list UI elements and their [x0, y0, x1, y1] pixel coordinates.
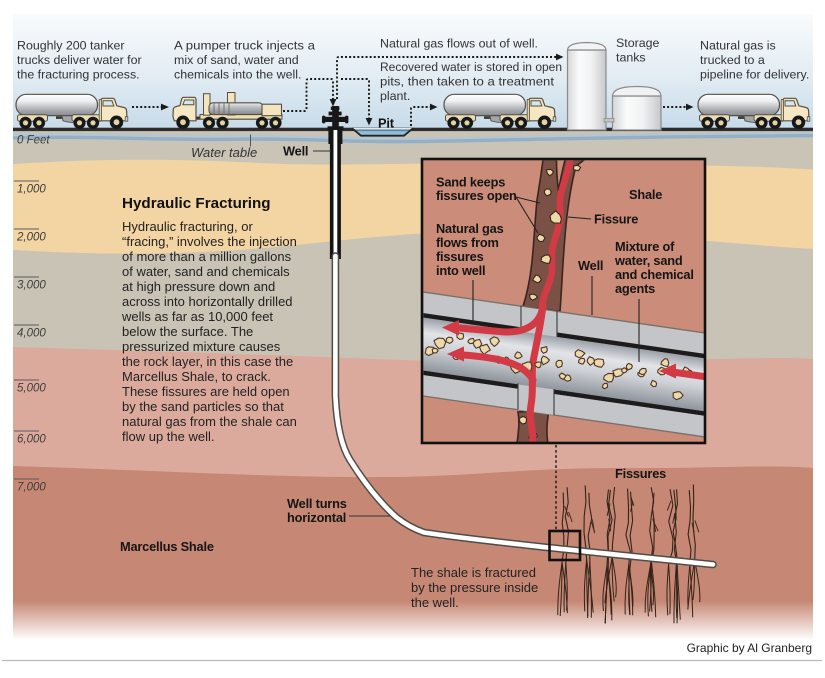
- svg-text:of water, sand and chemicals: of water, sand and chemicals: [122, 264, 290, 279]
- svg-text:Graphic by Al Granberg: Graphic by Al Granberg: [687, 641, 812, 655]
- svg-text:Hydraulic Fracturing: Hydraulic Fracturing: [122, 195, 271, 212]
- svg-text:below the surface. The: below the surface. The: [122, 324, 253, 339]
- svg-text:chemicals into the well.: chemicals into the well.: [174, 67, 301, 81]
- svg-text:fissures open: fissures open: [436, 188, 517, 203]
- svg-text:Marcellus Shale, to crack.: Marcellus Shale, to crack.: [122, 369, 271, 384]
- svg-text:at high pressure down and: at high pressure down and: [122, 279, 275, 294]
- svg-text:trucked to a: trucked to a: [700, 53, 765, 67]
- svg-text:These fissures are held open: These fissures are held open: [122, 384, 290, 399]
- svg-text:plant.: plant.: [380, 89, 410, 103]
- svg-text:Pit: Pit: [378, 116, 395, 131]
- svg-text:agents: agents: [615, 281, 655, 296]
- svg-text:Natural gas: Natural gas: [436, 221, 504, 236]
- svg-text:the well.: the well.: [411, 595, 459, 610]
- svg-text:Well: Well: [283, 144, 308, 159]
- svg-text:flow up the well.: flow up the well.: [122, 429, 215, 444]
- svg-text:Water table: Water table: [191, 145, 257, 160]
- svg-text:Fissures: Fissures: [615, 466, 666, 481]
- svg-text:the fracturing process.: the fracturing process.: [17, 67, 140, 81]
- svg-text:tanks: tanks: [616, 50, 646, 64]
- svg-text:flows from: flows from: [436, 235, 499, 250]
- svg-text:Fissure: Fissure: [594, 212, 638, 227]
- svg-text:pipeline for delivery.: pipeline for delivery.: [700, 67, 809, 81]
- svg-text:3,000: 3,000: [17, 280, 46, 292]
- svg-text:6,000: 6,000: [17, 434, 46, 446]
- svg-text:trucks deliver water for: trucks deliver water for: [17, 53, 142, 67]
- svg-text:0 Feet: 0 Feet: [17, 135, 50, 147]
- svg-text:by the sand particles so that: by the sand particles so that: [122, 399, 284, 414]
- svg-text:Natural gas flows out of well.: Natural gas flows out of well.: [380, 37, 538, 51]
- svg-text:by the pressure inside: by the pressure inside: [411, 580, 538, 595]
- svg-text:mix of sand, water and: mix of sand, water and: [174, 53, 299, 67]
- svg-text:Natural gas is: Natural gas is: [700, 39, 776, 53]
- svg-text:4,000: 4,000: [17, 328, 46, 340]
- svg-text:pits, then taken to a treatmen: pits, then taken to a treatment: [380, 74, 555, 88]
- svg-text:2,000: 2,000: [16, 232, 46, 244]
- svg-text:1,000: 1,000: [17, 184, 46, 196]
- svg-text:Well turns: Well turns: [287, 496, 347, 511]
- svg-text:across into horizontally drill: across into horizontally drilled: [122, 294, 293, 309]
- svg-text:natural gas from the shale can: natural gas from the shale can: [122, 414, 297, 429]
- svg-text:pressurized mixture causes: pressurized mixture causes: [122, 339, 281, 354]
- svg-text:The shale is fractured: The shale is fractured: [411, 565, 536, 580]
- svg-text:Shale: Shale: [629, 187, 662, 202]
- svg-text:into well: into well: [436, 263, 485, 278]
- svg-text:Hydraulic fracturing, or: Hydraulic fracturing, or: [122, 219, 253, 234]
- svg-text:Well: Well: [578, 258, 603, 273]
- svg-text:5,000: 5,000: [17, 383, 46, 395]
- svg-text:A pumper truck injects a: A pumper truck injects a: [174, 39, 315, 53]
- svg-text:Mixture of: Mixture of: [615, 239, 675, 254]
- svg-text:of more than a million gallons: of more than a million gallons: [122, 249, 292, 264]
- svg-text:horizontal: horizontal: [287, 510, 346, 525]
- svg-text:the rock layer, in this case t: the rock layer, in this case the: [122, 354, 293, 369]
- svg-text:7,000: 7,000: [17, 482, 46, 494]
- svg-text:fissures: fissures: [436, 249, 484, 264]
- svg-text:water, sand: water, sand: [614, 253, 683, 268]
- svg-text:Storage: Storage: [616, 36, 660, 50]
- svg-text:Marcellus Shale: Marcellus Shale: [120, 539, 214, 554]
- svg-text:Roughly 200 tanker: Roughly 200 tanker: [17, 39, 124, 53]
- svg-text:and chemical: and chemical: [615, 267, 694, 282]
- svg-text:wells as far as 10,000 feet: wells as far as 10,000 feet: [121, 309, 273, 324]
- svg-text:“fracing,” involves the inject: “fracing,” involves the injection: [122, 234, 297, 249]
- svg-text:Recovered water is stored in o: Recovered water is stored in open: [380, 60, 562, 74]
